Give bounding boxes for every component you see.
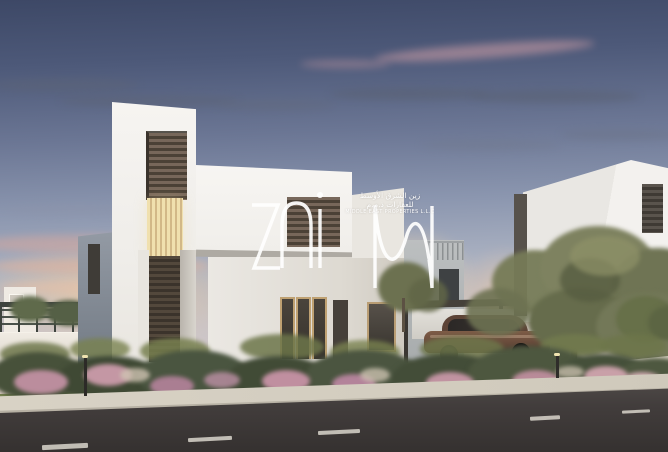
cloud — [470, 90, 640, 103]
garden-light-bollard — [556, 354, 559, 378]
flower-cluster — [14, 370, 68, 394]
cloud — [215, 100, 335, 110]
villa-render-photo: زين الشرق الأوسط للعقارات ذ.م.م MIDDLE E… — [0, 0, 668, 452]
cloud — [560, 130, 668, 140]
tower-shadow-fin — [88, 244, 100, 294]
pergola-vine — [10, 296, 50, 322]
watermark-arabic-line-2: للعقارات ذ.م.م — [343, 200, 437, 209]
pale-grass-tuft — [360, 368, 390, 382]
pale-grass-tuft — [556, 366, 584, 378]
garden-light-bollard — [84, 356, 87, 396]
cloud — [60, 95, 240, 107]
garden-light-glow — [82, 355, 88, 358]
tree-canopy — [466, 288, 530, 336]
logo-letter-n — [375, 205, 432, 288]
logo-letter-i-dot — [317, 192, 323, 198]
logo-letter-a — [282, 203, 311, 268]
flower-cluster — [204, 372, 240, 388]
logo-letter-z — [252, 205, 280, 268]
cloud — [330, 88, 490, 100]
pale-grass-tuft — [120, 368, 150, 382]
right-villa-louver-window — [642, 184, 663, 233]
tower-louver-window — [146, 131, 187, 200]
zain-watermark: زين الشرق الأوسط للعقارات ذ.م.م MIDDLE E… — [242, 180, 447, 298]
lit-stair-window — [147, 198, 183, 256]
watermark-text-block: زين الشرق الأوسط للعقارات ذ.م.م MIDDLE E… — [343, 191, 437, 217]
watermark-english-line: MIDDLE EAST PROPERTIES L.L.C — [343, 209, 437, 217]
small-tree-trunk — [402, 298, 405, 332]
watermark-arabic-line-1: زين الشرق الأوسط — [343, 191, 437, 200]
cloud — [420, 140, 560, 150]
pink-cloud — [300, 60, 390, 68]
garden-light-glow — [554, 353, 560, 356]
tree-canopy-light — [570, 236, 640, 276]
